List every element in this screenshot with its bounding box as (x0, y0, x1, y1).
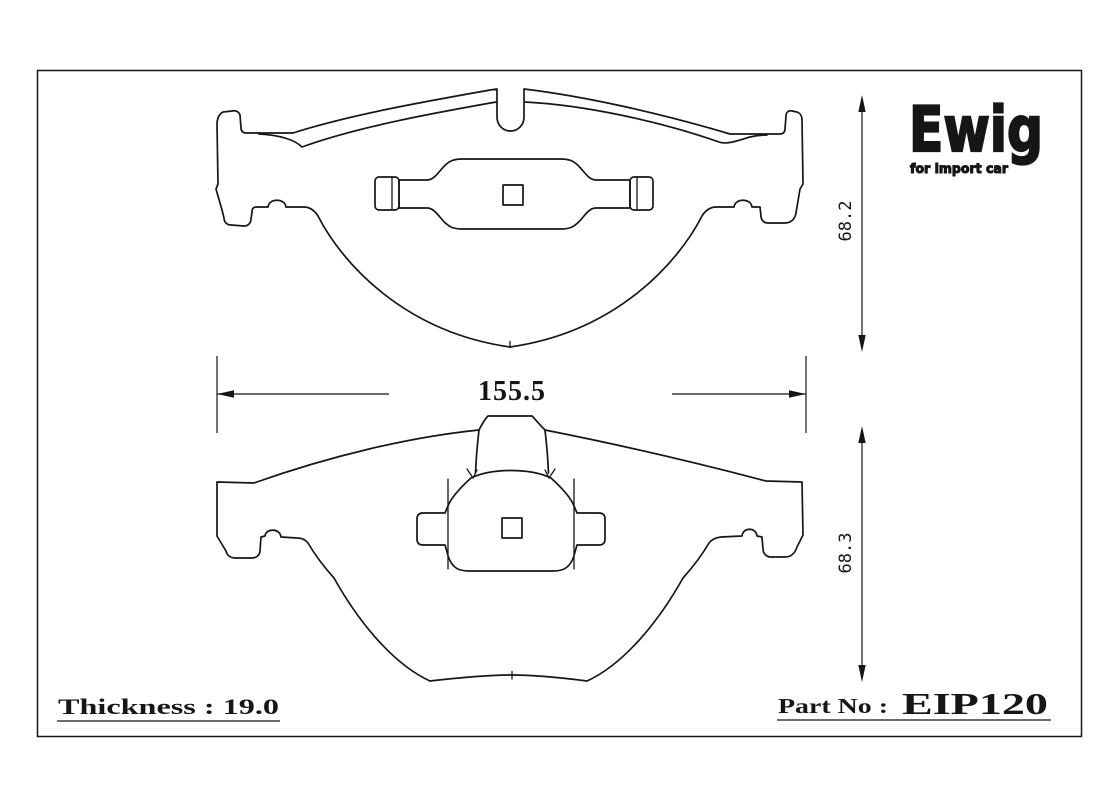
height-top-arrowhead-down (858, 335, 865, 352)
width-dimension-label: 155.5 (478, 376, 546, 407)
top-pad-view (216, 89, 803, 348)
height-bottom-arrowhead-down (858, 665, 865, 682)
part-no-label: Part No : (778, 694, 888, 718)
bottom-pad-center-body (417, 471, 605, 572)
logo: Ewig for import car (909, 93, 1043, 177)
logo-brand-text: Ewig (909, 93, 1043, 166)
brake-pad-technical-drawing: 155.5 68.2 68.3 Ewig for import car Thic… (0, 0, 1119, 791)
thickness-label: Thickness : 19.0 (58, 694, 279, 719)
top-pad-right-clip (630, 177, 653, 210)
drawing-sheet: 155.5 68.2 68.3 Ewig for import car Thic… (0, 0, 1119, 791)
top-pad-outline (216, 89, 803, 347)
dimension-height-top: 68.2 (836, 95, 866, 352)
top-pad-left-clip (375, 177, 399, 210)
logo-tagline-text: for import car (910, 162, 1009, 177)
dimension-height-bottom: 68.3 (836, 426, 866, 682)
height-top-dimension-label: 68.2 (836, 201, 856, 242)
height-bottom-arrowhead-up (858, 426, 865, 443)
width-arrowhead-left (217, 390, 234, 398)
dimension-width: 155.5 (217, 356, 806, 433)
bottom-pad-outline (217, 416, 803, 681)
top-pad-square-hole (503, 185, 523, 205)
bottom-pad-tab-right-edge (545, 430, 549, 473)
bottom-pad-square-hole (502, 518, 522, 538)
bottom-pad-view (217, 416, 803, 681)
height-bottom-dimension-label: 68.3 (836, 533, 856, 574)
top-pad-inner-arc-left (259, 102, 496, 147)
bottom-pad-tab-left-edge (476, 430, 480, 473)
footer: Thickness : 19.0 Part No : EIP120 (57, 686, 1051, 721)
top-pad-shim-outline (399, 159, 630, 229)
part-no-value: EIP120 (902, 686, 1048, 721)
width-arrowhead-right (789, 390, 806, 398)
height-top-arrowhead-up (858, 95, 865, 112)
top-pad-inner-arc-right (525, 102, 767, 143)
